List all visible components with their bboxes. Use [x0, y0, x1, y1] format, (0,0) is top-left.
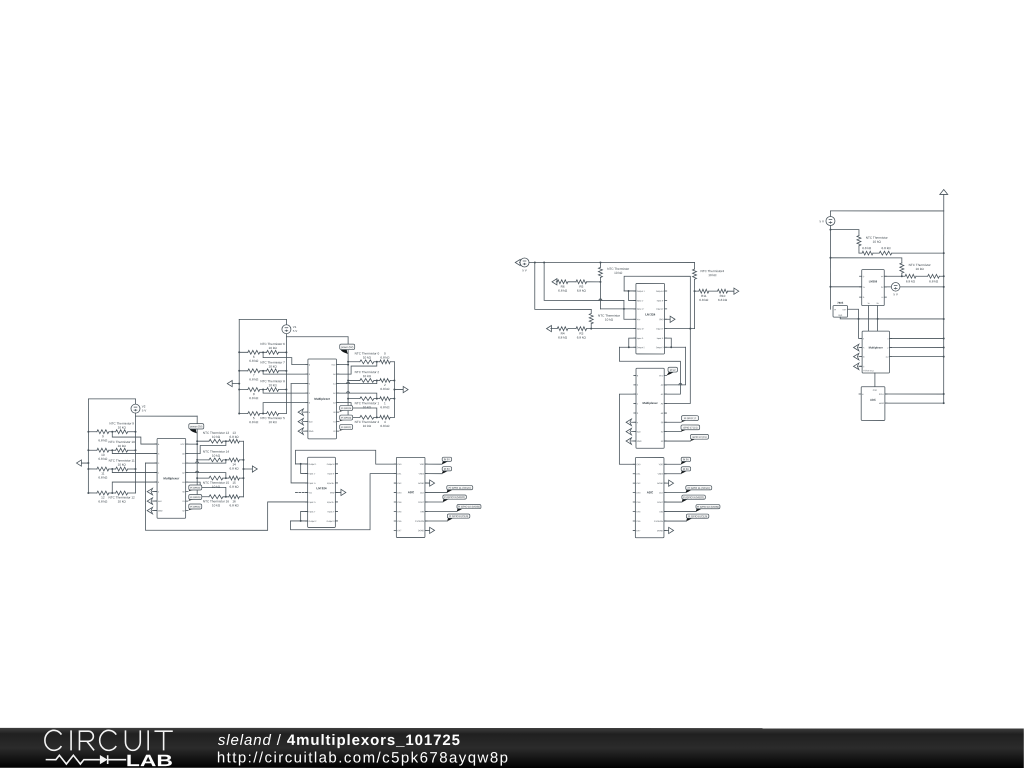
- svg-text:Input 2-: Input 2-: [309, 510, 316, 513]
- svg-text:ADC: ADC: [647, 490, 654, 494]
- svg-text:LM 324: LM 324: [645, 312, 656, 316]
- svg-text:DIN: DIN: [660, 511, 664, 513]
- svg-text:s: s: [158, 491, 159, 493]
- svg-text:6.8 kΩ: 6.8 kΩ: [380, 387, 390, 391]
- svg-text:VCC: VCC: [331, 365, 336, 367]
- svg-text:Pi 5V: Pi 5V: [683, 468, 689, 471]
- svg-text:Pi GPIO 8 (CE0): Pi GPIO 8 (CE0): [449, 514, 468, 518]
- svg-text:Multiplexer: Multiplexer: [163, 476, 180, 480]
- svg-text:6.8 kΩ: 6.8 kΩ: [249, 396, 259, 400]
- svg-text:Input 4+: Input 4+: [656, 308, 664, 311]
- svg-text:10 kΩ: 10 kΩ: [269, 383, 278, 387]
- svg-text:Pi GPIO 11 (SCLK): Pi GPIO 11 (SCLK): [688, 486, 710, 490]
- svg-text:Output 1: Output 1: [637, 290, 646, 293]
- svg-text:ALE: ALE: [637, 431, 641, 434]
- svg-text:DOUT: DOUT: [657, 502, 663, 504]
- svg-text:Pi GPIO 9 (MISO): Pi GPIO 9 (MISO): [683, 495, 704, 499]
- svg-text:Input 1-: Input 1-: [309, 472, 316, 475]
- svg-text:5 V: 5 V: [820, 219, 825, 223]
- svg-text:Pi GPIO 17: Pi GPIO 17: [684, 417, 697, 420]
- svg-text:CLK: CLK: [659, 493, 664, 495]
- svg-text:Pi 5V: Pi 5V: [683, 458, 689, 461]
- svg-text:10 kΩ: 10 kΩ: [708, 273, 717, 277]
- svg-text:6.8 kΩ: 6.8 kΩ: [558, 289, 568, 293]
- svg-text:Pi GPIO2: Pi GPIO2: [341, 426, 352, 429]
- svg-text:VCC: VCC: [659, 375, 664, 377]
- svg-text:6.8 kΩ: 6.8 kΩ: [906, 279, 916, 283]
- svg-text:6.8 kΩ: 6.8 kΩ: [380, 405, 390, 409]
- svg-text:VCC: VCC: [180, 444, 185, 446]
- svg-text:7805: 7805: [837, 301, 843, 305]
- svg-text:DGND: DGND: [657, 530, 663, 532]
- svg-text:power (5V): power (5V): [341, 346, 353, 349]
- svg-text:10 kΩ: 10 kΩ: [269, 346, 278, 350]
- svg-text:Input 1-: Input 1-: [637, 299, 644, 302]
- svg-text:6.8 kΩ: 6.8 kΩ: [230, 467, 240, 471]
- svg-text:ADC: ADC: [408, 490, 415, 494]
- svg-text:Pi GPIO4: Pi GPIO4: [190, 487, 201, 490]
- svg-text:6.8 kΩ: 6.8 kΩ: [230, 503, 240, 507]
- svg-text:10 kΩ: 10 kΩ: [212, 503, 221, 507]
- svg-text:GPIO 22 (15): GPIO 22 (15): [692, 436, 706, 439]
- svg-text:6.8 kΩ: 6.8 kΩ: [230, 485, 240, 489]
- svg-text:ADC: ADC: [870, 398, 876, 402]
- svg-text:6.8 kΩ: 6.8 kΩ: [230, 435, 240, 439]
- svg-text:s: s: [309, 412, 310, 414]
- svg-text:Input 1+: Input 1+: [637, 308, 645, 311]
- svg-text:10 kΩ: 10 kΩ: [363, 424, 372, 428]
- svg-text:8 Chan mux: 8 Chan mux: [864, 370, 874, 372]
- svg-text:LM358: LM358: [869, 279, 878, 283]
- svg-text:ALE: ALE: [158, 500, 162, 503]
- svg-text:AGND: AGND: [657, 482, 663, 485]
- svg-text:VREF: VREF: [419, 474, 425, 476]
- svg-text:10 kΩ: 10 kΩ: [212, 485, 221, 489]
- svg-text:Pi 5V: Pi 5V: [670, 369, 676, 372]
- svg-text:x: x: [887, 338, 888, 340]
- svg-text:10 kΩ: 10 kΩ: [269, 420, 278, 424]
- svg-text:s: s: [863, 338, 864, 340]
- svg-text:10 kΩ: 10 kΩ: [118, 500, 127, 504]
- svg-text:Input 3-: Input 3-: [657, 337, 664, 340]
- svg-text:10 kΩ: 10 kΩ: [873, 240, 882, 244]
- svg-text:GND: GND: [309, 431, 314, 433]
- svg-text:Pi GPIO 8 (CE0): Pi GPIO 8 (CE0): [688, 514, 707, 518]
- svg-text:GND: GND: [637, 441, 642, 443]
- svg-text:10 kΩ: 10 kΩ: [363, 355, 372, 359]
- svg-text:6.8 kΩ: 6.8 kΩ: [98, 476, 108, 480]
- svg-text:2o: 2o: [877, 303, 879, 305]
- svg-text:Pi 5V: Pi 5V: [444, 458, 450, 461]
- svg-text:AGND: AGND: [418, 482, 424, 485]
- svg-text:DIN: DIN: [421, 511, 425, 513]
- svg-text:Multiplexer: Multiplexer: [642, 401, 658, 405]
- svg-text:VDD: VDD: [420, 464, 425, 466]
- svg-text:Pi GPIO 10 (MOSI): Pi GPIO 10 (MOSI): [458, 505, 480, 509]
- svg-text:6.8 kΩ: 6.8 kΩ: [699, 298, 709, 302]
- svg-text:6.8 kΩ: 6.8 kΩ: [98, 438, 108, 442]
- svg-text:Pi 5V: Pi 5V: [444, 468, 450, 471]
- svg-text:Vcc: Vcc: [309, 492, 312, 494]
- svg-text:Pi GPIO2: Pi GPIO2: [190, 506, 201, 509]
- svg-text:10 kΩ: 10 kΩ: [118, 425, 127, 429]
- svg-text:Input 4-: Input 4-: [657, 299, 664, 302]
- svg-text:GND: GND: [659, 319, 664, 321]
- svg-text:6.8 kΩ: 6.8 kΩ: [380, 355, 390, 359]
- svg-text:CLK: CLK: [420, 492, 425, 494]
- svg-text:10 kΩ: 10 kΩ: [605, 318, 614, 322]
- svg-text:Output 2: Output 2: [637, 346, 646, 349]
- svg-text:power (5V): power (5V): [190, 425, 202, 428]
- svg-text:VREF: VREF: [658, 474, 664, 476]
- svg-text:Pi GPIO 11 (SCLK): Pi GPIO 11 (SCLK): [449, 486, 471, 490]
- svg-text:VDD: VDD: [659, 464, 664, 466]
- svg-text:CS/SHDN: CS/SHDN: [654, 521, 664, 523]
- svg-text:Multiplexer: Multiplexer: [314, 397, 331, 401]
- svg-text:Pi GPIO 10 (MOSI): Pi GPIO 10 (MOSI): [697, 505, 719, 509]
- svg-text:Output 3: Output 3: [327, 520, 336, 523]
- svg-text:SCLK: SCLK: [879, 394, 885, 396]
- svg-text:10 kΩ: 10 kΩ: [118, 444, 127, 448]
- svg-text:6.8 kΩ: 6.8 kΩ: [249, 359, 259, 363]
- svg-text:GND: GND: [838, 315, 843, 317]
- svg-text:Input 2-: Input 2-: [637, 337, 644, 340]
- svg-text:Pi GPIO 9 (MISO): Pi GPIO 9 (MISO): [444, 495, 465, 499]
- svg-text:Input 1+: Input 1+: [309, 482, 317, 485]
- svg-text:10 kΩ: 10 kΩ: [916, 267, 925, 271]
- svg-text:10 kΩ: 10 kΩ: [363, 405, 372, 409]
- svg-text:Input 2+: Input 2+: [309, 501, 317, 504]
- svg-text:Vcc: Vcc: [637, 319, 640, 321]
- svg-text:6.8 kΩ: 6.8 kΩ: [98, 500, 108, 504]
- svg-text:GPIO 27 (21): GPIO 27 (21): [683, 426, 697, 429]
- svg-text:10 kΩ: 10 kΩ: [118, 463, 127, 467]
- svg-text:Pi GPIO3: Pi GPIO3: [190, 496, 201, 499]
- svg-text:DOUT: DOUT: [418, 502, 424, 504]
- svg-text:Pi GPIO3: Pi GPIO3: [341, 417, 352, 420]
- svg-text:6.8 kΩ: 6.8 kΩ: [577, 289, 587, 293]
- svg-text:ALE: ALE: [309, 421, 313, 424]
- svg-text:Input 3+: Input 3+: [656, 328, 664, 331]
- svg-text:http://circuitlab.com/c5pk678a: http://circuitlab.com/c5pk678ayqw8p: [217, 749, 510, 766]
- svg-text:Input 2+: Input 2+: [637, 328, 645, 331]
- svg-text:6.8 kΩ: 6.8 kΩ: [558, 336, 568, 340]
- svg-text:sleland / 4multiplexors_101725: sleland / 4multiplexors_101725: [218, 732, 461, 749]
- svg-text:10 kΩ: 10 kΩ: [269, 365, 278, 369]
- svg-text:5 V: 5 V: [893, 292, 898, 296]
- svg-text:Output 2: Output 2: [309, 520, 318, 523]
- svg-text:Input 4+: Input 4+: [327, 482, 335, 485]
- svg-text:6.8 kΩ: 6.8 kΩ: [249, 377, 259, 381]
- svg-text:6.8 kΩ: 6.8 kΩ: [882, 246, 892, 250]
- svg-text:6.8 kΩ: 6.8 kΩ: [249, 420, 259, 424]
- svg-text:GND: GND: [158, 510, 163, 512]
- svg-text:MISO: MISO: [879, 403, 884, 405]
- svg-text:Multiplexer: Multiplexer: [869, 346, 883, 350]
- svg-text:GND: GND: [330, 492, 335, 494]
- svg-text:Input 3-: Input 3-: [328, 510, 335, 513]
- svg-text:in: in: [862, 394, 863, 396]
- svg-text:Pi GPIO4: Pi GPIO4: [341, 407, 352, 410]
- svg-text:LAB: LAB: [126, 752, 173, 768]
- svg-text:1o: 1o: [867, 303, 869, 305]
- svg-text:6.8 kΩ: 6.8 kΩ: [98, 457, 108, 461]
- svg-text:5 V: 5 V: [293, 329, 298, 333]
- svg-text:6.8 kΩ: 6.8 kΩ: [929, 279, 939, 283]
- svg-text:5 V: 5 V: [522, 268, 527, 272]
- svg-text:6.8 kΩ: 6.8 kΩ: [862, 246, 872, 250]
- svg-text:GND: GND: [873, 390, 878, 392]
- svg-text:10 kΩ: 10 kΩ: [614, 271, 623, 275]
- svg-text:10 kΩ: 10 kΩ: [212, 435, 221, 439]
- svg-text:LM 324: LM 324: [316, 486, 327, 490]
- svg-text:Output 4: Output 4: [656, 290, 665, 293]
- svg-text:5 V: 5 V: [142, 408, 147, 412]
- svg-text:6.8 kΩ: 6.8 kΩ: [718, 298, 728, 302]
- svg-text:s: s: [637, 422, 638, 424]
- svg-text:out: out: [886, 356, 889, 359]
- svg-text:Output 1: Output 1: [309, 463, 318, 466]
- svg-text:DGND: DGND: [418, 530, 424, 532]
- svg-text:6.8 kΩ: 6.8 kΩ: [577, 336, 587, 340]
- svg-text:6.8 kΩ: 6.8 kΩ: [380, 424, 390, 428]
- svg-text:Input 3+: Input 3+: [327, 501, 335, 504]
- svg-text:y: y: [887, 347, 888, 349]
- svg-text:Input 4-: Input 4-: [328, 472, 335, 475]
- svg-text:10 kΩ: 10 kΩ: [363, 374, 372, 378]
- svg-text:10 kΩ: 10 kΩ: [212, 454, 221, 458]
- svg-text:Output 4: Output 4: [327, 463, 336, 466]
- svg-text:CS/SHDN: CS/SHDN: [415, 521, 425, 523]
- svg-text:Output 3: Output 3: [656, 346, 665, 349]
